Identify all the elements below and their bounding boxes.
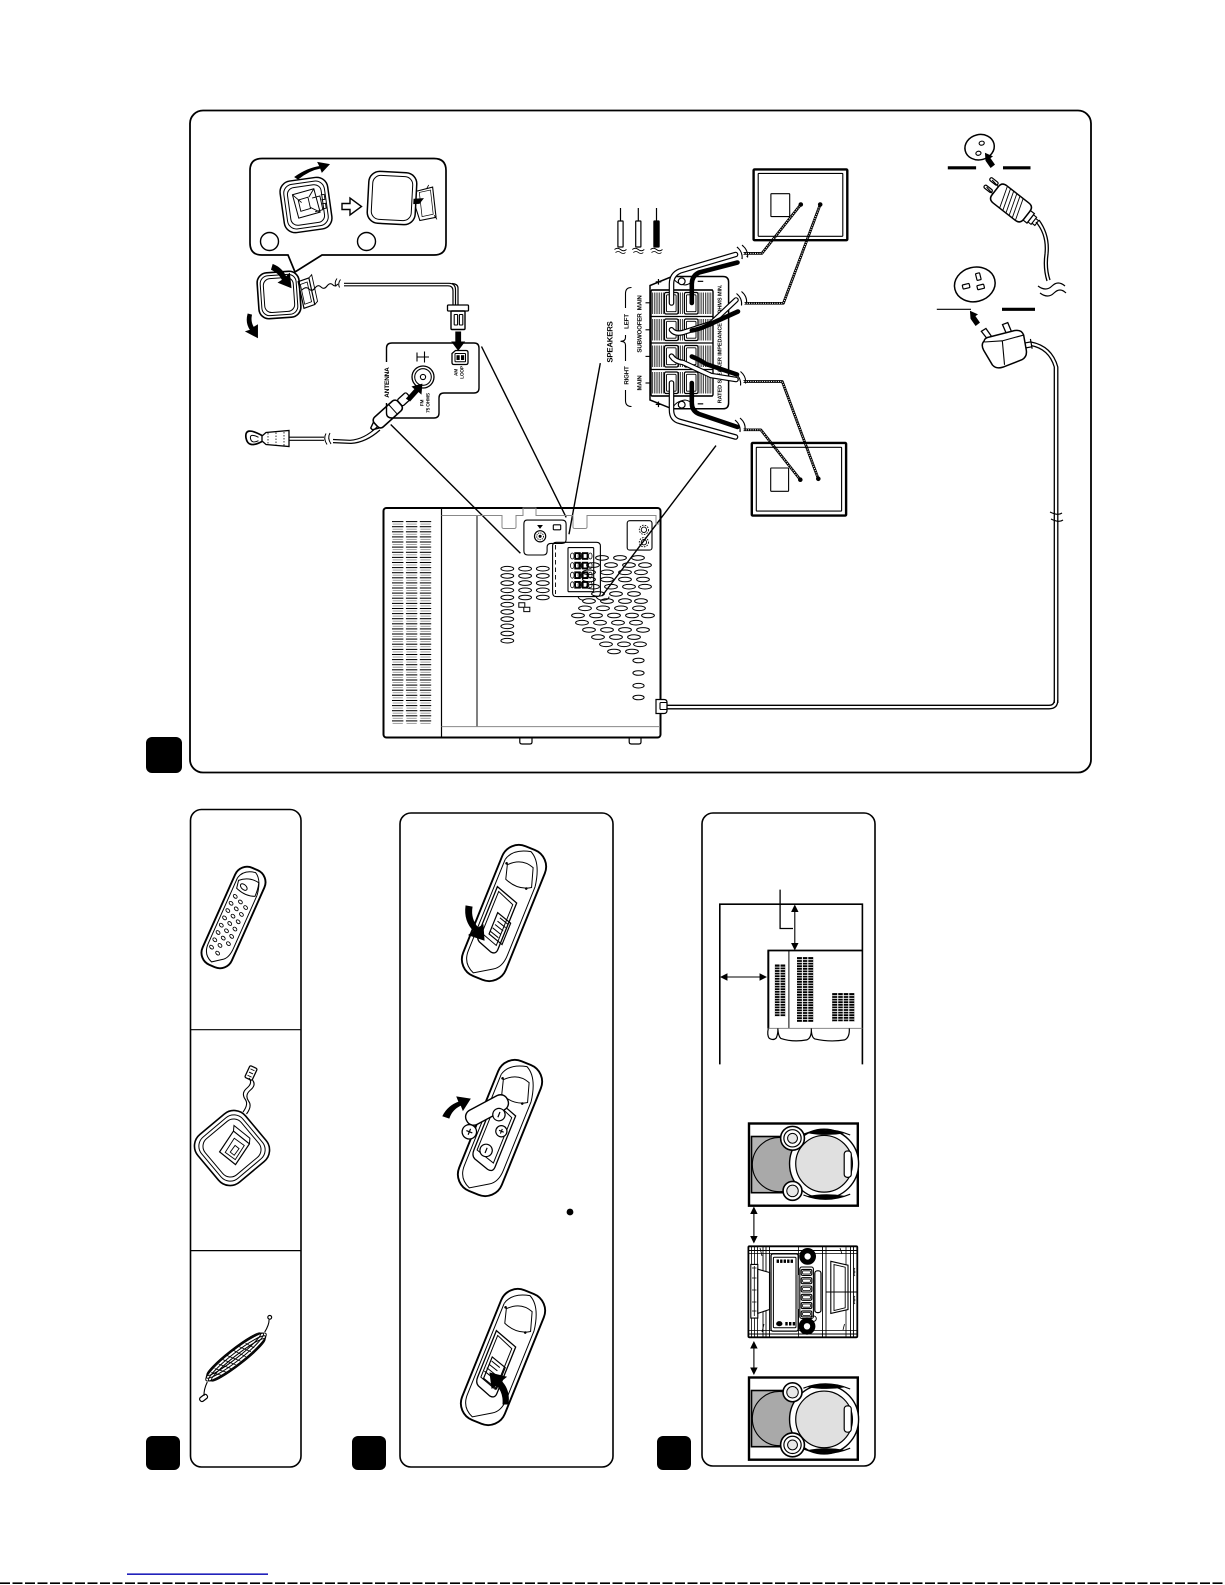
svg-text:−: − (697, 276, 703, 288)
svg-text:LOOP: LOOP (460, 365, 466, 379)
svg-text:75 OHMS: 75 OHMS (426, 392, 432, 413)
svg-text:RIGHT: RIGHT (624, 366, 631, 385)
svg-text:MAIN: MAIN (637, 295, 644, 311)
svg-text:RATED SPEAKER IMPEDANCE : 6 OH: RATED SPEAKER IMPEDANCE : 6 OHMS MIN. (718, 284, 724, 403)
svg-text:SUBWOOFER: SUBWOOFER (637, 313, 644, 353)
svg-text:+: + (655, 277, 661, 289)
svg-text:FM: FM (420, 400, 426, 407)
svg-text:ANTENNA: ANTENNA (384, 367, 391, 398)
svg-text:SPEAKERS: SPEAKERS (606, 321, 615, 362)
svg-text:AM: AM (454, 369, 460, 376)
svg-text:−: − (697, 399, 703, 411)
svg-text:MAIN: MAIN (637, 375, 644, 391)
svg-text:LEFT: LEFT (624, 314, 631, 329)
svg-text:+: + (655, 399, 661, 411)
